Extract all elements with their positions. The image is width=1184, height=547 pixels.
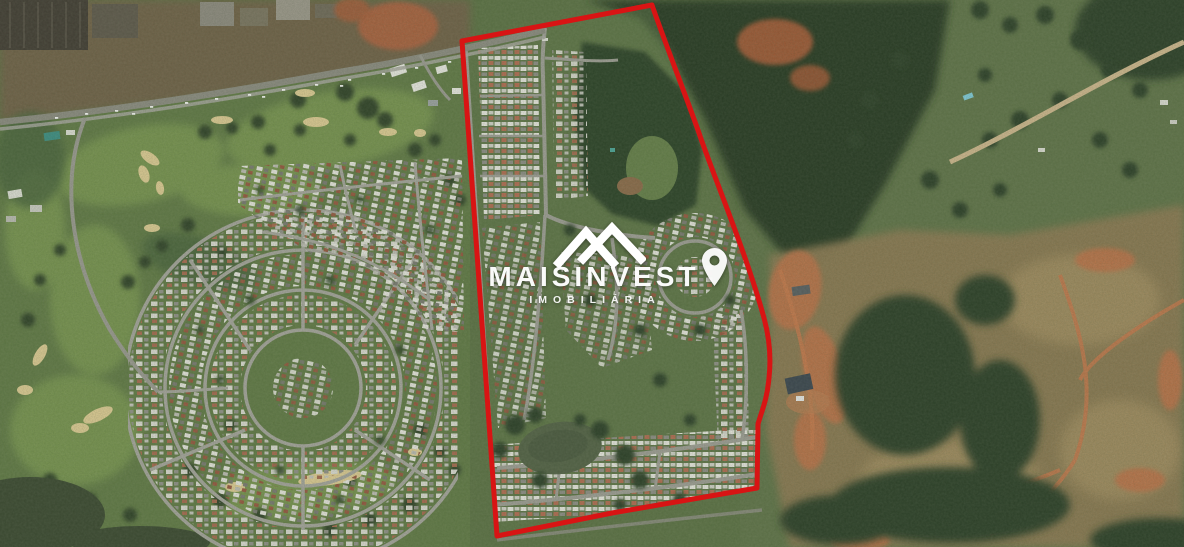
satellite-imagery — [0, 0, 1184, 547]
satellite-map-view: MAISINVEST IMOBILIÁRIA — [0, 0, 1184, 547]
noise-texture — [0, 0, 1184, 547]
